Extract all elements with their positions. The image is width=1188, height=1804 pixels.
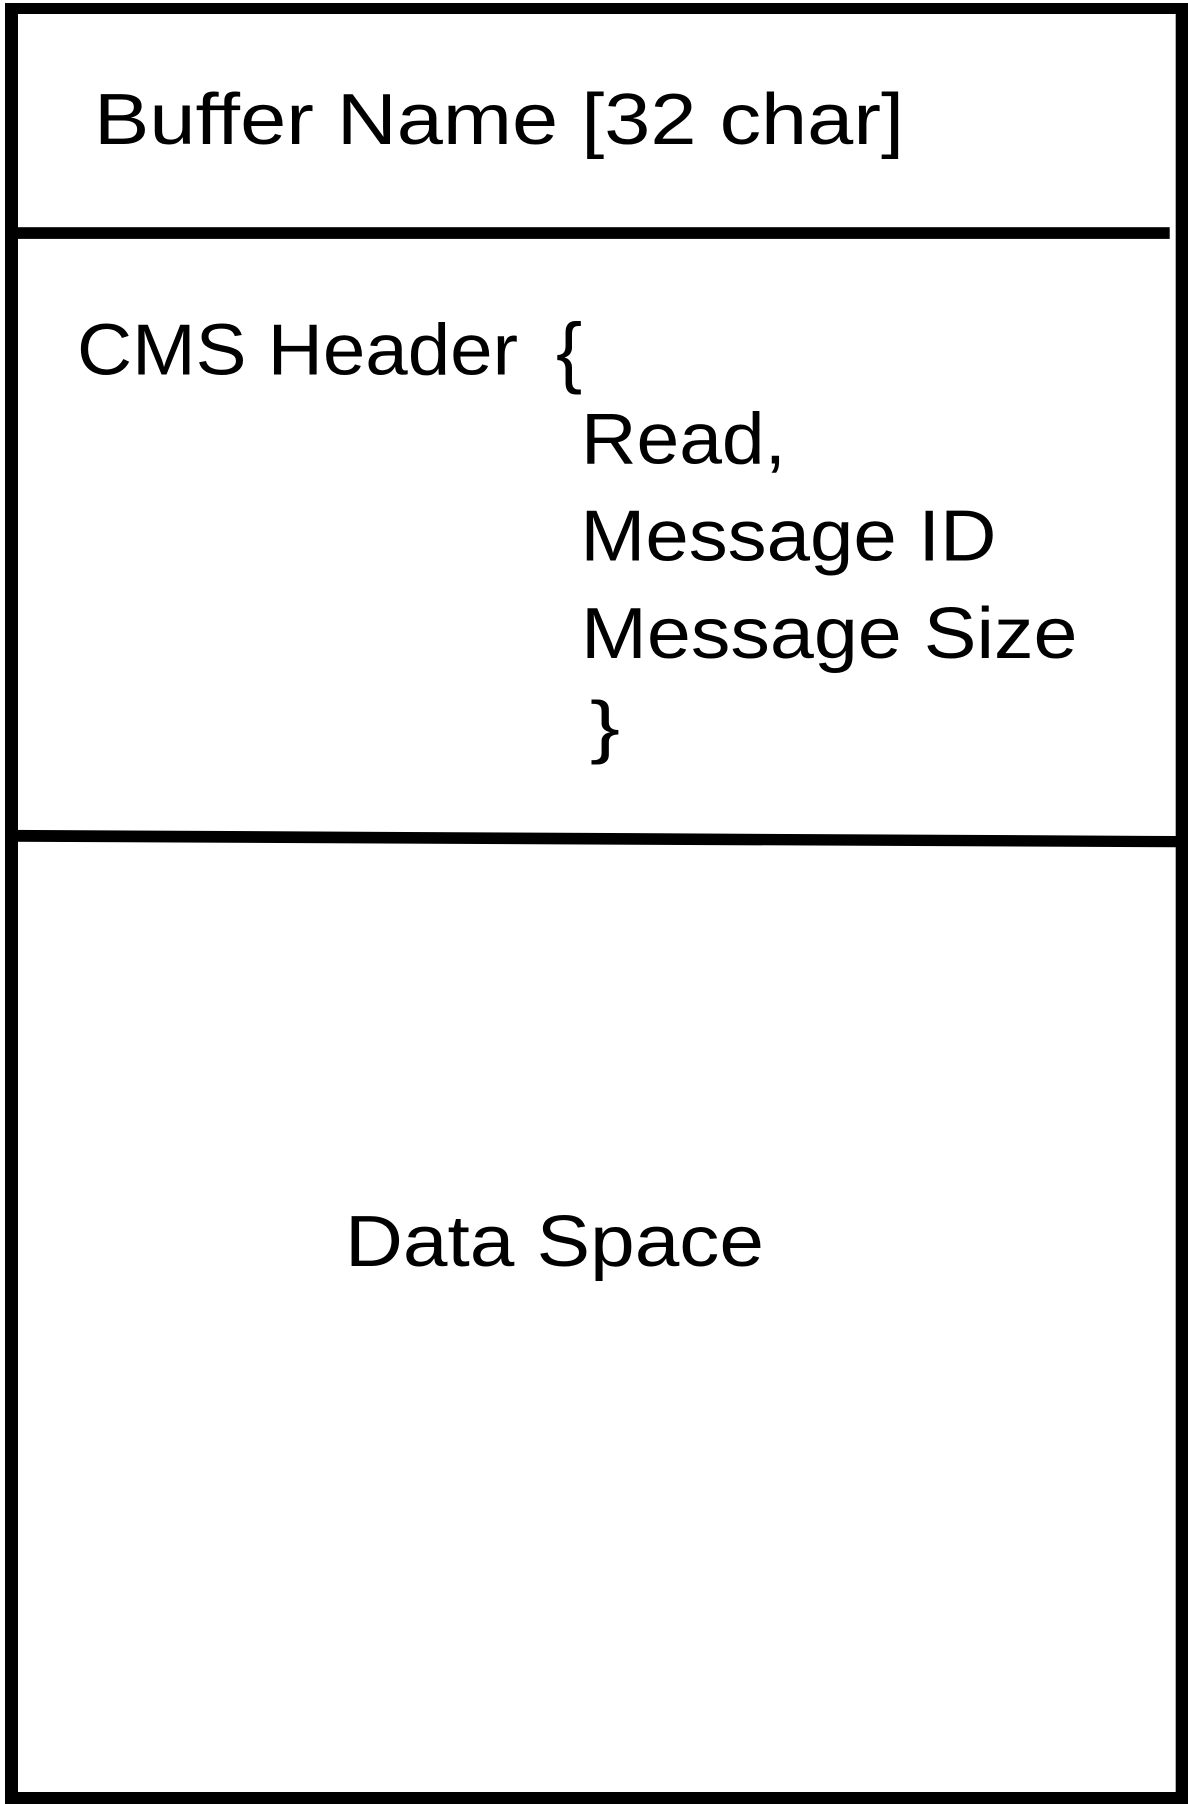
svg-text:Message Size: Message Size <box>581 593 1078 674</box>
svg-text:}: } <box>590 687 620 765</box>
svg-text:Data Space: Data Space <box>345 1201 764 1282</box>
svg-text:Read,: Read, <box>581 399 786 480</box>
svg-text:CMS Header: CMS Header <box>77 310 518 391</box>
svg-text:Message ID: Message ID <box>580 495 996 576</box>
svg-text:{: { <box>556 307 582 395</box>
svg-text:Buffer Name [32 char]: Buffer Name [32 char] <box>94 79 904 160</box>
